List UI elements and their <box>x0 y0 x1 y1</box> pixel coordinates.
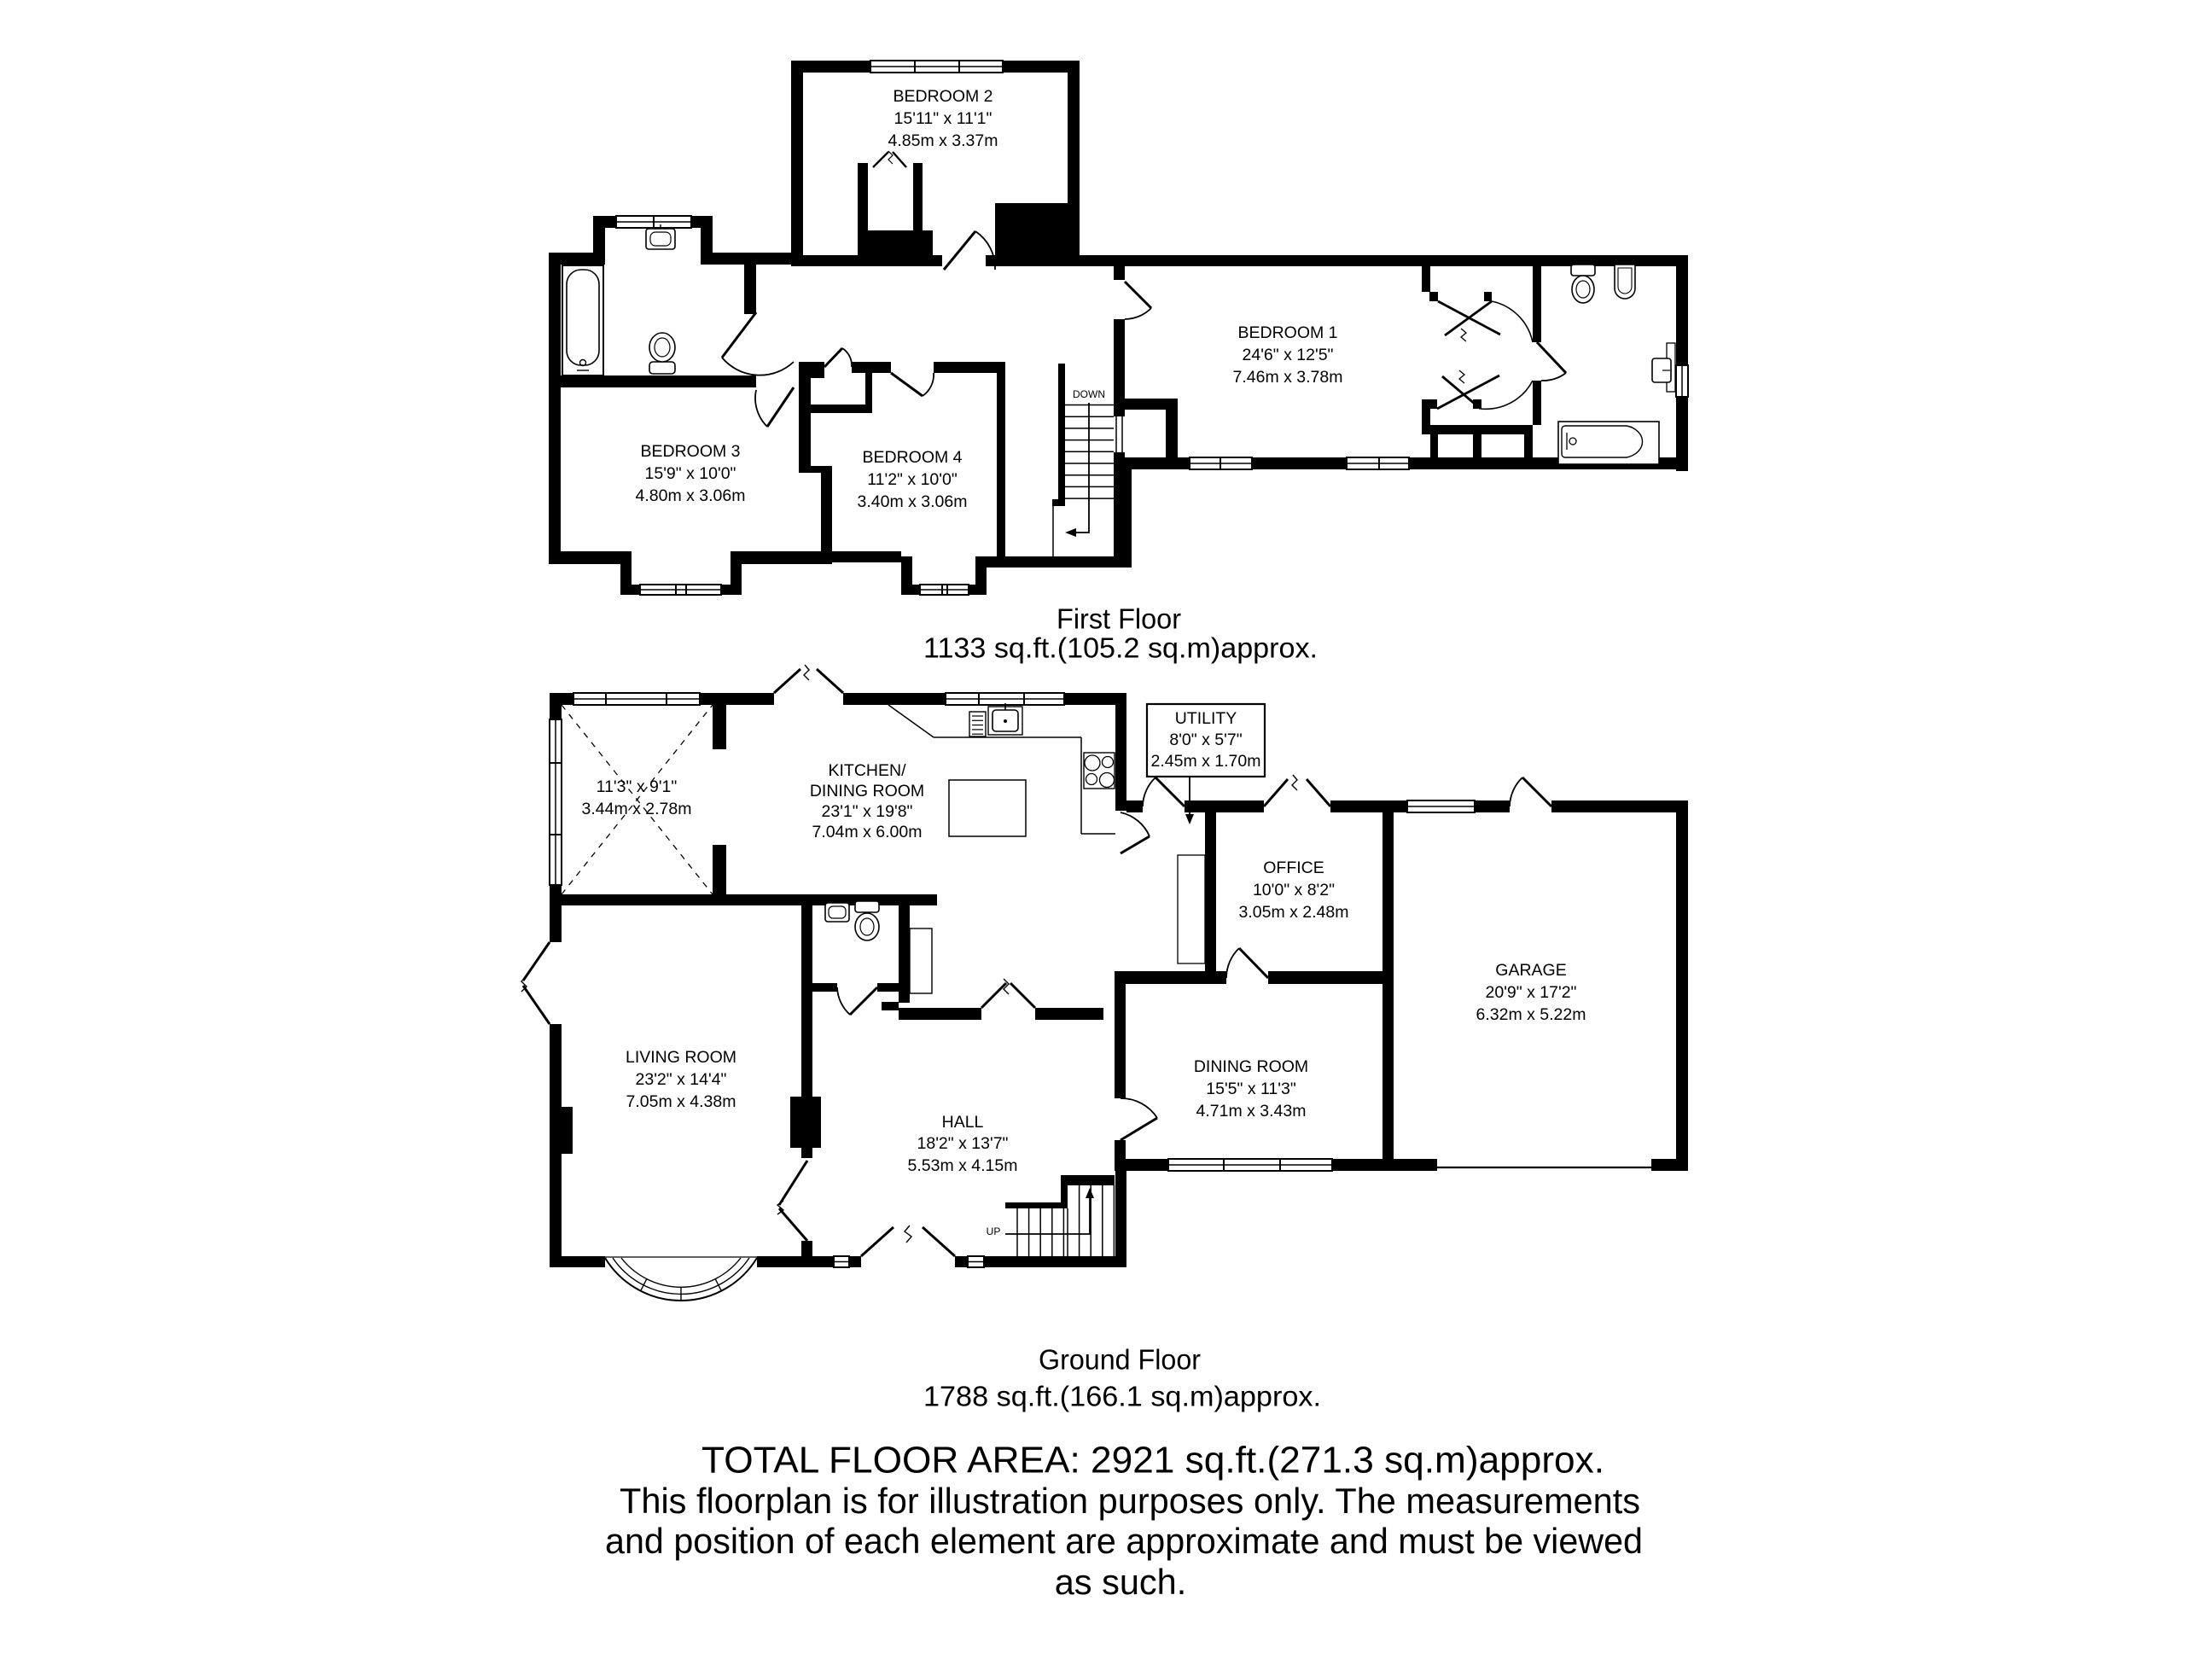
svg-text:DINING ROOM: DINING ROOM <box>1194 1057 1308 1076</box>
svg-text:15'5" x 11'3": 15'5" x 11'3" <box>1206 1080 1296 1098</box>
svg-text:GARAGE: GARAGE <box>1495 961 1566 980</box>
svg-text:3.40m x 3.06m: 3.40m x 3.06m <box>858 492 968 511</box>
svg-text:HALL: HALL <box>942 1113 984 1132</box>
svg-text:First Floor: First Floor <box>1057 603 1181 635</box>
svg-text:20'9" x 17'2": 20'9" x 17'2" <box>1486 983 1577 1002</box>
svg-text:10'0" x 8'2": 10'0" x 8'2" <box>1253 881 1335 899</box>
svg-text:and position of each element a: and position of each element are approxi… <box>605 1521 1643 1561</box>
svg-text:BEDROOM 1: BEDROOM 1 <box>1237 323 1337 342</box>
svg-text:as such.: as such. <box>1055 1562 1187 1602</box>
svg-text:11'2" x 10'0": 11'2" x 10'0" <box>867 470 958 489</box>
svg-text:4.80m x 3.06m: 4.80m x 3.06m <box>636 486 746 505</box>
svg-text:KITCHEN/: KITCHEN/ <box>828 761 906 780</box>
svg-text:3.05m x 2.48m: 3.05m x 2.48m <box>1239 903 1349 922</box>
svg-text:LIVING ROOM: LIVING ROOM <box>626 1048 736 1067</box>
svg-text:6.32m x 5.22m: 6.32m x 5.22m <box>1476 1005 1586 1024</box>
svg-text:This floorplan is for illustra: This floorplan is for illustration purpo… <box>620 1481 1640 1521</box>
svg-text:23'2" x 14'4": 23'2" x 14'4" <box>636 1070 727 1089</box>
svg-text:2.45m x 1.70m: 2.45m x 1.70m <box>1151 752 1261 771</box>
svg-text:5.53m x 4.15m: 5.53m x 4.15m <box>908 1156 1018 1175</box>
svg-text:OFFICE: OFFICE <box>1263 859 1324 877</box>
svg-text:7.04m x 6.00m: 7.04m x 6.00m <box>812 823 923 841</box>
svg-text:15'11" x 11'1": 15'11" x 11'1" <box>894 109 992 128</box>
svg-text:1788 sq.ft.(166.1 sq.m)approx.: 1788 sq.ft.(166.1 sq.m)approx. <box>923 1381 1321 1412</box>
svg-text:8'0" x 5'7": 8'0" x 5'7" <box>1169 731 1242 749</box>
svg-text:BEDROOM 4: BEDROOM 4 <box>862 448 962 467</box>
svg-text:4.85m x 3.37m: 4.85m x 3.37m <box>888 131 998 150</box>
svg-text:UP: UP <box>987 1225 1001 1237</box>
svg-text:7.05m x 4.38m: 7.05m x 4.38m <box>626 1092 736 1111</box>
svg-text:BEDROOM 3: BEDROOM 3 <box>640 442 740 461</box>
svg-text:1133 sq.ft.(105.2 sq.m)approx.: 1133 sq.ft.(105.2 sq.m)approx. <box>923 632 1318 664</box>
svg-text:23'1" x 19'8": 23'1" x 19'8" <box>822 802 913 821</box>
svg-text:UTILITY: UTILITY <box>1175 709 1237 728</box>
svg-text:7.46m x 3.78m: 7.46m x 3.78m <box>1233 368 1343 387</box>
svg-text:15'9" x 10'0": 15'9" x 10'0" <box>645 464 736 483</box>
svg-text:TOTAL FLOOR AREA: 2921 sq.ft.(: TOTAL FLOOR AREA: 2921 sq.ft.(271.3 sq.m… <box>701 1440 1604 1481</box>
svg-text:DINING ROOM: DINING ROOM <box>810 782 924 800</box>
svg-text:BEDROOM 2: BEDROOM 2 <box>893 87 992 106</box>
svg-text:18'2" x 13'7": 18'2" x 13'7" <box>917 1134 1009 1153</box>
svg-text:3.44m x 2.78m: 3.44m x 2.78m <box>582 800 692 818</box>
svg-text:4.71m x 3.43m: 4.71m x 3.43m <box>1196 1102 1307 1121</box>
svg-text:DOWN: DOWN <box>1073 388 1105 400</box>
svg-text:Ground Floor: Ground Floor <box>1039 1344 1201 1376</box>
svg-text:24'6" x 12'5": 24'6" x 12'5" <box>1243 346 1334 364</box>
svg-text:11'3" x 9'1": 11'3" x 9'1" <box>597 777 678 796</box>
